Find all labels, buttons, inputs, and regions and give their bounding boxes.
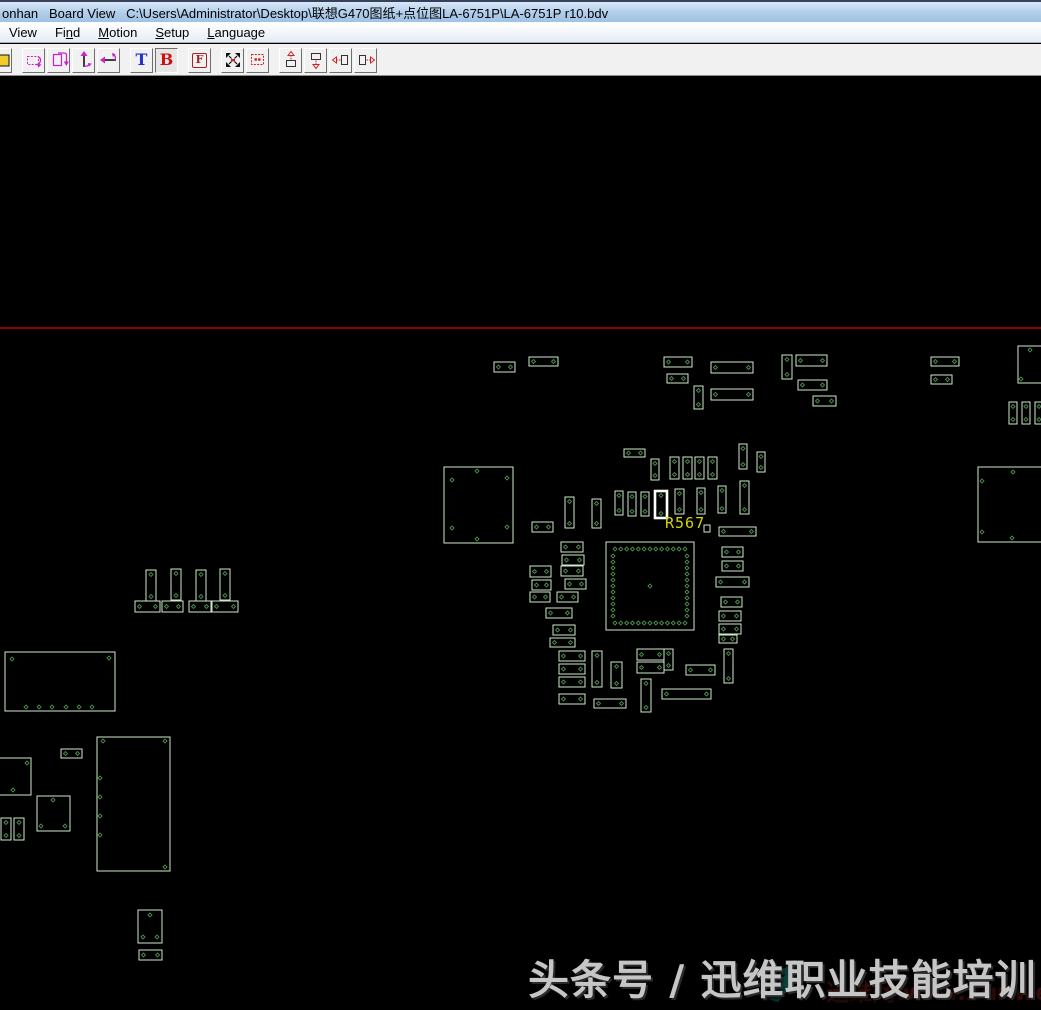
component-pin <box>643 510 647 514</box>
component-pin <box>552 360 556 364</box>
pcb-component[interactable] <box>546 608 572 618</box>
component-pin <box>640 666 644 670</box>
menu-motion[interactable]: Motion <box>89 23 146 42</box>
component-pin <box>685 590 689 594</box>
component-pin <box>946 378 950 382</box>
menu-find[interactable]: Find <box>46 23 89 42</box>
menu-view[interactable]: View <box>0 23 46 42</box>
component-pin <box>76 752 80 756</box>
pcb-component[interactable] <box>722 561 743 571</box>
component-pin <box>611 608 615 612</box>
flip-board-icon <box>49 50 69 70</box>
component-pin <box>569 641 573 645</box>
zoom-fit-button[interactable] <box>221 48 244 73</box>
pcb-canvas[interactable] <box>0 76 1041 1010</box>
component-pin <box>671 547 675 551</box>
pcb-component[interactable] <box>641 492 649 516</box>
component-pin <box>505 476 509 480</box>
component-pin <box>199 573 203 577</box>
component-pin <box>535 583 539 587</box>
flip-horizontal-button[interactable] <box>97 48 120 73</box>
component-pin <box>685 584 689 588</box>
title-bar[interactable]: onhan Board View C:\Users\Administrator\… <box>0 0 1041 22</box>
component-pin <box>10 657 14 661</box>
component-pin <box>666 621 670 625</box>
component-pin <box>165 605 169 609</box>
component-pin <box>199 595 203 599</box>
component-pin <box>677 621 681 625</box>
component-pin <box>98 814 102 818</box>
component-pin <box>163 865 167 869</box>
component-pin <box>562 667 566 671</box>
component-pin <box>549 611 553 615</box>
component-pin <box>505 525 509 529</box>
component-pin <box>560 595 564 599</box>
component-pin <box>569 628 573 632</box>
pcb-component[interactable] <box>494 362 515 372</box>
open-file-button[interactable] <box>0 48 12 73</box>
pcb-component[interactable] <box>1 818 11 840</box>
component-pin <box>934 360 938 364</box>
pcb-component[interactable] <box>628 492 636 516</box>
component-pin <box>711 473 715 477</box>
component-pin <box>17 834 21 838</box>
pcb-component[interactable] <box>592 499 601 528</box>
component-pin <box>568 522 572 526</box>
pcb-component[interactable] <box>718 486 726 513</box>
rotate-part-icon <box>24 50 44 70</box>
pcb-component[interactable] <box>559 651 585 661</box>
pcb-component[interactable] <box>611 662 622 688</box>
component-pin <box>580 582 584 586</box>
component-pin <box>720 489 724 493</box>
component-pin <box>90 705 94 709</box>
flip-vertical-button[interactable] <box>72 48 95 73</box>
component-pin <box>611 572 615 576</box>
component-pin <box>720 507 724 511</box>
component-pin <box>1011 405 1015 409</box>
component-pin <box>568 500 572 504</box>
component-pin <box>724 600 728 604</box>
component-pin <box>611 578 615 582</box>
component-pin <box>630 510 634 514</box>
component-pin <box>562 654 566 658</box>
pcb-component[interactable] <box>530 566 551 577</box>
pcb-component[interactable] <box>171 569 181 600</box>
component-pin <box>565 558 569 562</box>
pcb-component[interactable] <box>637 649 664 660</box>
component-pin <box>138 605 142 609</box>
component-pin <box>743 508 747 512</box>
component-pin <box>174 594 178 598</box>
component-pin <box>579 680 583 684</box>
pcb-component[interactable] <box>532 522 553 532</box>
component-pin <box>611 614 615 618</box>
pan-right-icon <box>356 50 376 70</box>
component-pin <box>148 913 152 917</box>
pcb-component[interactable] <box>798 380 827 390</box>
component-pin <box>577 569 581 573</box>
component-pin <box>564 545 568 549</box>
pcb-component[interactable] <box>550 638 575 647</box>
component-pin <box>799 359 803 363</box>
component-pin <box>613 621 617 625</box>
pcb-component[interactable] <box>162 601 183 612</box>
menu-language[interactable]: Language <box>198 23 274 42</box>
component-pin <box>667 664 671 668</box>
pcb-component[interactable] <box>196 570 206 601</box>
component-pin <box>685 578 689 582</box>
pcb-component[interactable] <box>559 664 585 674</box>
pcb-component[interactable] <box>559 677 585 687</box>
pan-down-button[interactable] <box>304 48 327 73</box>
pcb-component[interactable] <box>697 488 705 514</box>
component-pin <box>648 547 652 551</box>
component-pin <box>640 653 644 657</box>
component-pin <box>450 526 454 530</box>
component-pin <box>685 566 689 570</box>
component-pin <box>722 627 726 631</box>
pcb-component[interactable] <box>0 758 31 795</box>
component-pin <box>1028 348 1032 352</box>
component-pin <box>532 360 536 364</box>
component-pin <box>670 377 674 381</box>
pcb-component[interactable] <box>561 566 583 576</box>
component-pin <box>685 596 689 600</box>
pcb-component[interactable] <box>683 457 692 479</box>
top-view-letter: T <box>136 52 148 68</box>
component-pin <box>579 654 583 658</box>
component-pin <box>509 365 513 369</box>
component-pin <box>654 547 658 551</box>
component-pin <box>785 358 789 362</box>
menu-setup[interactable]: Setup <box>146 23 198 42</box>
bottom-view-button[interactable]: B <box>155 48 178 73</box>
pcb-component[interactable] <box>1022 402 1030 424</box>
pcb-component[interactable] <box>14 818 24 840</box>
component-pin <box>737 550 741 554</box>
pcb-component[interactable] <box>695 457 704 479</box>
component-pin <box>615 682 619 686</box>
pan-down-icon <box>306 50 326 70</box>
pcb-component[interactable] <box>675 489 684 514</box>
component-pin <box>154 605 158 609</box>
component-pin <box>653 474 657 478</box>
component-pin <box>562 680 566 684</box>
component-pin <box>685 614 689 618</box>
component-pin <box>475 537 479 541</box>
pcb-component[interactable] <box>719 527 756 536</box>
zoom-selection-icon <box>248 50 268 70</box>
pcb-component[interactable] <box>146 570 156 601</box>
pcb-component[interactable] <box>624 449 645 457</box>
pcb-component[interactable] <box>782 355 792 379</box>
component-pin <box>682 377 686 381</box>
pcb-component[interactable] <box>719 611 741 621</box>
pcb-component[interactable] <box>606 542 694 630</box>
component-pin <box>678 508 682 512</box>
component-pin <box>685 560 689 564</box>
component-pin <box>192 605 196 609</box>
pcb-component[interactable] <box>722 547 743 557</box>
component-pin <box>37 705 41 709</box>
pcb-component[interactable] <box>135 601 160 612</box>
component-pin <box>223 572 227 576</box>
component-pin <box>667 652 671 656</box>
component-pin <box>156 953 160 957</box>
component-pin <box>711 460 715 464</box>
component-pin <box>63 824 67 828</box>
component-pin <box>566 611 570 615</box>
pcb-component[interactable] <box>637 662 664 673</box>
pcb-component[interactable] <box>716 577 749 587</box>
pcb-component[interactable] <box>189 601 211 612</box>
component-pin <box>1011 418 1015 422</box>
component-pin <box>564 569 568 573</box>
component-pin <box>475 469 479 473</box>
component-pin <box>619 621 623 625</box>
component-pin <box>627 451 631 455</box>
pcb-component[interactable] <box>719 624 741 634</box>
component-pin <box>25 761 29 765</box>
component-pin <box>642 547 646 551</box>
component-pin <box>579 667 583 671</box>
component-pin <box>759 466 763 470</box>
menu-bar: ViewFindMotionSetupLanguage <box>0 22 1041 43</box>
component-pin <box>611 596 615 600</box>
component-pin <box>533 570 537 574</box>
component-pin <box>689 668 693 672</box>
component-pin <box>759 455 763 459</box>
mirror-button[interactable]: F <box>188 48 211 73</box>
component-pin <box>821 359 825 363</box>
component-pin <box>149 573 153 577</box>
component-pin <box>747 366 751 370</box>
pcb-component[interactable] <box>5 652 115 711</box>
pcb-component[interactable] <box>739 444 747 469</box>
component-pin <box>556 628 560 632</box>
rotate-part-button[interactable] <box>22 48 45 73</box>
component-pin <box>617 509 621 513</box>
component-pin <box>595 522 599 526</box>
component-pin <box>101 739 105 743</box>
pcb-component[interactable] <box>641 679 651 712</box>
component-pin <box>643 495 647 499</box>
pan-right-button[interactable] <box>354 48 377 73</box>
component-pin <box>953 360 957 364</box>
component-pin <box>553 641 557 645</box>
pcb-component[interactable] <box>562 555 584 565</box>
component-pin <box>737 564 741 568</box>
pcb-component[interactable] <box>694 386 703 409</box>
pan-left-button[interactable] <box>329 48 352 73</box>
component-pin <box>934 378 938 382</box>
window-title: onhan Board View C:\Users\Administrator\… <box>0 3 608 22</box>
pcb-component[interactable] <box>444 467 513 543</box>
component-pin <box>741 463 745 467</box>
pcb-component[interactable] <box>529 357 558 366</box>
pcb-component[interactable] <box>708 457 717 479</box>
component-pin <box>51 798 55 802</box>
component-pin <box>544 595 548 599</box>
component-pin <box>232 605 236 609</box>
component-pin <box>660 621 664 625</box>
component-pin <box>735 614 739 618</box>
component-pin <box>572 595 576 599</box>
component-pin <box>686 460 690 464</box>
pcb-component[interactable] <box>557 592 578 602</box>
component-pin <box>568 582 572 586</box>
component-pin <box>667 360 671 364</box>
component-pin <box>98 795 102 799</box>
component-pin <box>735 627 739 631</box>
component-pin <box>685 608 689 612</box>
pan-up-icon <box>281 50 301 70</box>
pcb-component[interactable] <box>670 457 679 479</box>
pcb-component[interactable] <box>651 459 659 480</box>
component-pin <box>611 602 615 606</box>
pcb-component[interactable] <box>931 375 952 384</box>
pcb-component[interactable] <box>594 699 626 708</box>
component-pin <box>980 479 984 483</box>
pcb-component[interactable] <box>740 481 749 514</box>
pcb-component[interactable] <box>664 357 692 367</box>
component-pin <box>741 447 745 451</box>
component-pin <box>722 530 726 534</box>
component-pin <box>1010 536 1014 540</box>
component-pin <box>639 451 643 455</box>
component-pin <box>174 572 178 576</box>
component-pin <box>535 525 539 529</box>
component-pin <box>801 383 805 387</box>
component-pin <box>677 547 681 551</box>
pan-up-button[interactable] <box>279 48 302 73</box>
component-pin <box>577 545 581 549</box>
component-pin <box>1024 405 1028 409</box>
pcb-component[interactable] <box>553 625 575 635</box>
pcb-component[interactable] <box>565 497 574 528</box>
component-pin <box>39 824 43 828</box>
pcb-component[interactable] <box>565 579 586 589</box>
pcb-component[interactable] <box>139 950 162 960</box>
pcb-component[interactable] <box>220 569 230 600</box>
component-pin <box>659 512 663 516</box>
component-pin <box>547 525 551 529</box>
bottom-view-letter: B <box>160 52 174 68</box>
highlighted-part-label: R567 <box>665 514 705 532</box>
component-pin <box>642 621 646 625</box>
pcb-viewport[interactable]: R567 迅维网www.xunwei.com 头条号 / 迅维职业技能培训 <box>0 76 1041 1010</box>
component-pin <box>659 494 663 498</box>
component-pin <box>697 403 701 407</box>
component-pin <box>625 547 629 551</box>
component-pin <box>683 547 687 551</box>
component-pin <box>545 583 549 587</box>
component-pin <box>631 547 635 551</box>
component-pin <box>671 621 675 625</box>
pcb-component[interactable] <box>978 467 1041 542</box>
component-pin <box>699 491 703 495</box>
component-pin <box>719 580 723 584</box>
component-pin <box>644 682 648 686</box>
flip-horizontal-icon <box>99 50 119 70</box>
component-pin <box>685 602 689 606</box>
pcb-component[interactable] <box>97 737 170 871</box>
pcb-component[interactable] <box>664 649 673 670</box>
flip-board-button[interactable] <box>47 48 70 73</box>
pcb-component[interactable] <box>721 597 742 607</box>
component-pin <box>698 460 702 464</box>
component-pin <box>699 508 703 512</box>
component-pin <box>579 697 583 701</box>
pcb-component[interactable] <box>667 374 688 383</box>
component-pin <box>654 621 658 625</box>
zoom-selection-button[interactable] <box>246 48 269 73</box>
component-pin <box>215 605 219 609</box>
component-pin <box>177 605 181 609</box>
component-pin <box>743 484 747 488</box>
pcb-component[interactable] <box>592 651 602 687</box>
component-pin <box>665 692 669 696</box>
pcb-component[interactable] <box>686 665 715 675</box>
component-pin <box>785 373 789 377</box>
component-pin <box>725 550 729 554</box>
toolbar: T B F <box>0 44 1041 76</box>
component-pin <box>1037 405 1041 409</box>
component-pin <box>98 776 102 780</box>
component-pin <box>722 637 726 641</box>
component-pin <box>223 594 227 598</box>
component-pin <box>1019 377 1023 381</box>
pcb-component[interactable] <box>931 357 959 366</box>
pcb-component[interactable] <box>1009 402 1017 424</box>
component-pin <box>727 677 731 681</box>
component-pin <box>666 547 670 551</box>
pcb-component[interactable] <box>212 601 238 612</box>
flip-vertical-icon <box>74 50 94 70</box>
component-pin <box>4 821 8 825</box>
component-pin <box>630 495 634 499</box>
component-pin <box>660 547 664 551</box>
component-pin <box>631 621 635 625</box>
component-pin <box>1037 418 1041 422</box>
component-pin <box>686 473 690 477</box>
component-pin <box>714 393 718 397</box>
zoom-fit-icon <box>223 50 243 70</box>
component-pin <box>155 935 159 939</box>
component-pin <box>617 494 621 498</box>
component-pin <box>698 473 702 477</box>
pcb-component[interactable] <box>615 491 623 515</box>
pcb-component[interactable] <box>724 649 733 683</box>
component-pin <box>205 605 209 609</box>
pcb-component[interactable] <box>561 542 583 552</box>
component-pin <box>727 652 731 656</box>
pan-left-icon <box>331 50 351 70</box>
pcb-component[interactable] <box>796 355 827 366</box>
component-pin <box>611 554 615 558</box>
top-view-button[interactable]: T <box>130 48 153 73</box>
component-pin <box>98 833 102 837</box>
component-pin <box>686 360 690 364</box>
pcb-component[interactable] <box>813 396 836 406</box>
pcb-component[interactable] <box>559 694 585 704</box>
component-pin <box>597 702 601 706</box>
pcb-component[interactable] <box>662 689 711 699</box>
pcb-component[interactable] <box>61 749 82 758</box>
component-pin <box>611 566 615 570</box>
component-pin <box>149 595 153 599</box>
